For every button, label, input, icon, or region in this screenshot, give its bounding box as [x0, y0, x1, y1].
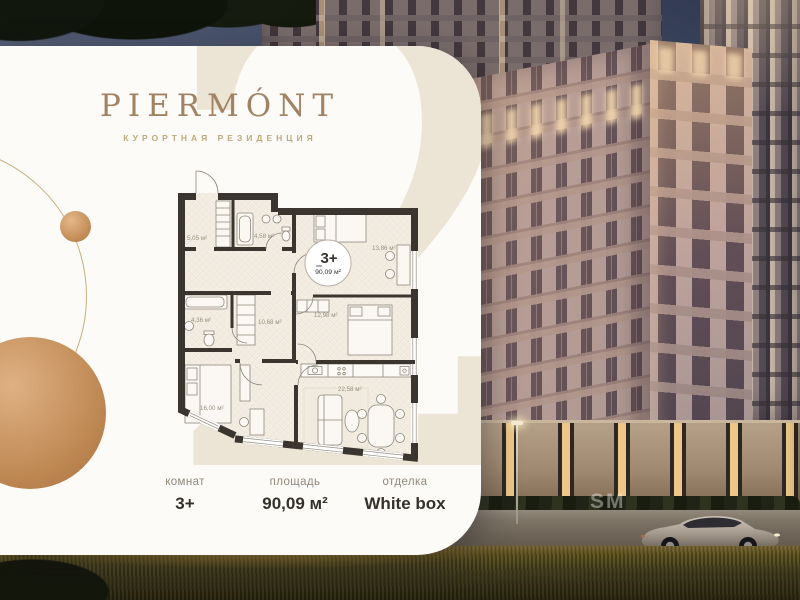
spec-label: отделка — [350, 476, 460, 488]
spec-area: площадь 90,09 м² — [240, 476, 350, 514]
room-area-label: 22,58 м² — [338, 386, 362, 393]
badge-rooms-count: 3+ — [320, 250, 337, 267]
room-area-label: 13,86 м² — [372, 245, 396, 252]
spec-value: White box — [350, 494, 460, 514]
spec-value: 3+ — [130, 494, 240, 514]
room-area-label: 4,36 м² — [191, 317, 211, 324]
gold-sphere-large — [0, 337, 106, 489]
room-area-label: 12,98 м² — [314, 312, 338, 319]
spec-row: комнат 3+ площадь 90,09 м² отделка White… — [130, 476, 460, 514]
brand-logo: PIERMÓNT — [0, 88, 440, 124]
spec-label: площадь — [240, 476, 350, 488]
brand-tagline: КУРОРТНАЯ РЕЗИДЕНЦИЯ — [0, 133, 440, 143]
cornice-uplights — [650, 46, 752, 81]
spec-label: комнат — [130, 476, 240, 488]
brand-block: PIERMÓNT КУРОРТНАЯ РЕЗИДЕНЦИЯ — [0, 88, 440, 143]
street-lamp — [516, 424, 518, 524]
badge-area: 90,09 м² — [315, 269, 342, 276]
rooms-badge: 3+ 90,09 м² — [305, 240, 351, 286]
promo-slide: SM 2 PIERMÓNT КУРОРТНАЯ РЕЗИДЕНЦИЯ — [0, 0, 800, 600]
floor-plan: 5,05 м² 4,58 м² 13,86 м² 12,98 м² 4,36 м… — [178, 167, 418, 465]
gold-sphere-small — [60, 211, 91, 242]
room-area-label: 16,00 м² — [200, 405, 224, 412]
spec-value: 90,09 м² — [240, 494, 350, 514]
spec-finish: отделка White box — [350, 476, 460, 514]
spec-rooms: комнат 3+ — [130, 476, 240, 514]
photo-watermark: SM — [590, 490, 626, 514]
apartment-card: 2 PIERMÓNT КУРОРТНАЯ РЕЗИДЕНЦИЯ — [0, 46, 481, 555]
room-area-label: 4,58 м² — [254, 233, 274, 240]
room-area-label: 5,05 м² — [187, 235, 207, 242]
room-area-label: 10,68 м² — [258, 319, 282, 326]
street-lamp-light — [511, 421, 523, 425]
